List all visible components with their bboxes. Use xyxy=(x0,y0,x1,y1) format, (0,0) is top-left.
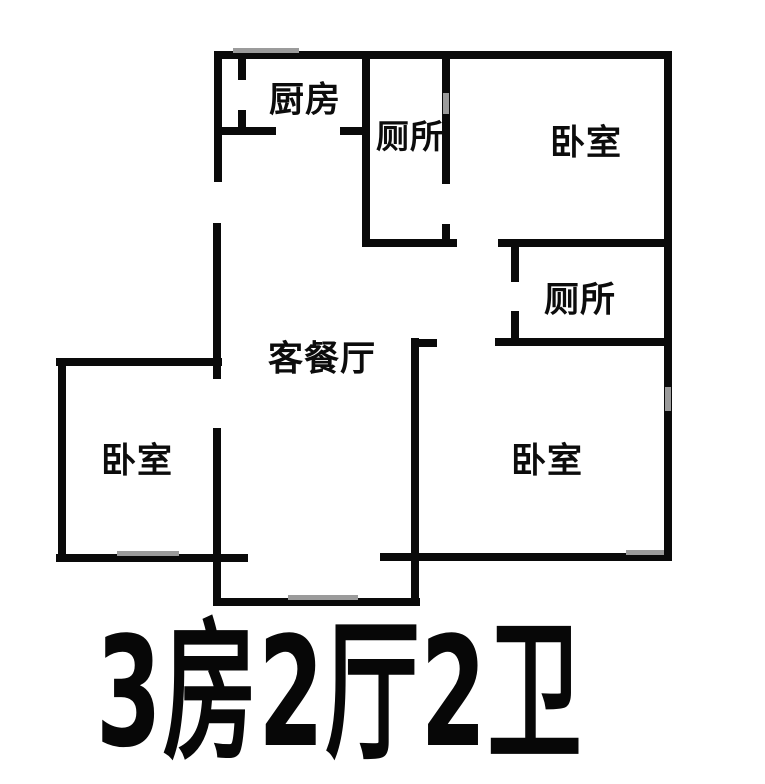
wall-segment xyxy=(362,54,370,247)
wall-segment xyxy=(664,51,672,561)
wall-segment xyxy=(213,223,221,379)
room-label-toilet-upper: 厕所 xyxy=(376,110,444,158)
window-marker xyxy=(626,550,664,555)
wall-segment xyxy=(56,358,222,366)
wall-segment xyxy=(511,311,519,346)
wall-segment xyxy=(238,54,246,80)
wall-segment xyxy=(411,338,419,606)
room-label-bedroom-upper-right: 卧室 xyxy=(550,115,622,166)
wall-segment xyxy=(495,338,672,346)
room-label-bedroom-left: 卧室 xyxy=(101,433,173,484)
room-label-living-dining: 客餐厅 xyxy=(268,331,376,382)
wall-segment xyxy=(214,51,222,182)
window-marker xyxy=(665,387,671,411)
wall-segment xyxy=(498,239,672,247)
layout-summary-caption: 3房2厅2卫 xyxy=(96,612,583,773)
wall-segment xyxy=(511,243,519,282)
room-label-kitchen: 厨房 xyxy=(269,72,341,123)
wall-segment xyxy=(442,224,450,247)
room-label-toilet-right: 厕所 xyxy=(544,272,616,323)
wall-segment xyxy=(213,428,221,606)
wall-segment xyxy=(58,358,66,562)
window-marker xyxy=(233,48,299,53)
room-label-bedroom-lower-right: 卧室 xyxy=(511,433,583,484)
window-marker xyxy=(288,595,358,600)
wall-segment xyxy=(238,110,246,135)
floor-plan: 厨房 厕所 卧室 厕所 客餐厅 卧室 卧室 3房2厅2卫 xyxy=(0,0,765,784)
window-marker xyxy=(117,551,179,556)
